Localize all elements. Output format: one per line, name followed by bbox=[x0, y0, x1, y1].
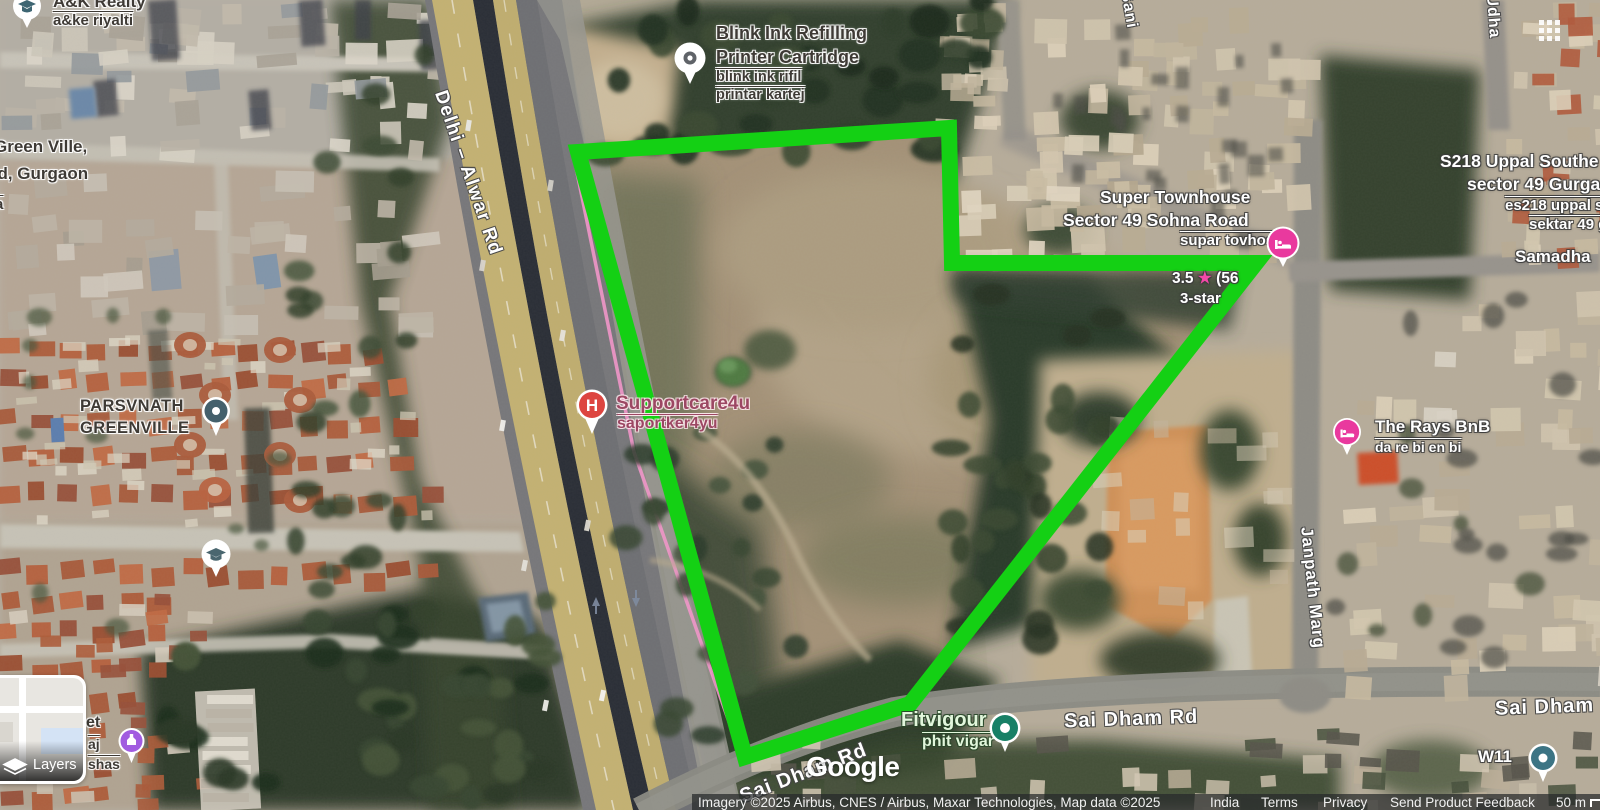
svg-text:H: H bbox=[586, 396, 598, 415]
